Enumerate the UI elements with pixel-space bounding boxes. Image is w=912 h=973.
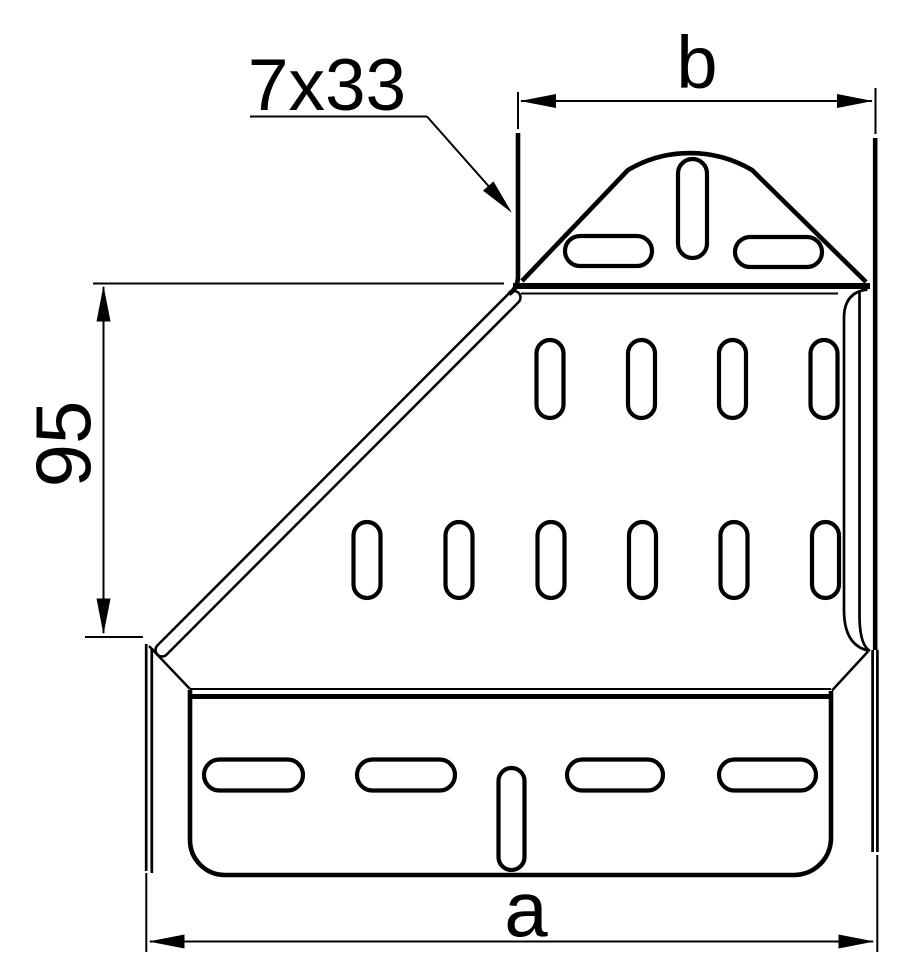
slot-vertical	[719, 340, 746, 418]
arrow-right-icon	[839, 935, 875, 949]
slot-horizontal	[567, 760, 663, 791]
right-rail-mid-edge	[860, 291, 871, 651]
label-dim-95: 95	[19, 401, 107, 488]
label-dim-b: b	[676, 21, 717, 104]
reducer-part	[146, 133, 877, 875]
slot-horizontal	[565, 236, 652, 266]
arrow-down-icon	[97, 599, 111, 635]
dimension-95: 95	[19, 284, 504, 638]
slot-vertical	[812, 522, 839, 598]
top-flange-left-edge	[509, 133, 518, 294]
slot-vertical	[629, 522, 656, 598]
slot-horizontal	[357, 760, 455, 791]
slot-vertical	[628, 340, 655, 418]
slot-vertical	[721, 522, 748, 598]
slot-vertical	[538, 522, 565, 598]
right-rail-inner-edge	[844, 290, 868, 651]
right-corner-chamfer	[832, 652, 868, 691]
slot-vertical	[446, 522, 473, 598]
label-dim-a: a	[504, 865, 548, 953]
technical-drawing-canvas: b 95 a 7x33	[0, 0, 912, 973]
dimension-a: a	[146, 855, 877, 953]
arrow-left-icon	[520, 94, 556, 108]
dimension-b: b	[518, 21, 876, 134]
label-slot-callout: 7x33	[248, 45, 406, 126]
arrow-left-icon	[149, 935, 185, 949]
slot-horizontal	[204, 760, 303, 791]
slot-vertical	[499, 768, 525, 870]
callout-7x33: 7x33	[248, 45, 512, 213]
slot-horizontal	[735, 237, 822, 267]
arrow-right-icon	[837, 94, 873, 108]
slot-vertical	[678, 159, 707, 258]
slot-vertical	[537, 340, 564, 418]
reducer-drawing: b 95 a 7x33	[0, 0, 912, 973]
slot-vertical	[354, 522, 381, 598]
arrow-up-icon	[97, 286, 111, 322]
slot-horizontal	[719, 760, 816, 791]
slot-vertical	[811, 340, 838, 418]
